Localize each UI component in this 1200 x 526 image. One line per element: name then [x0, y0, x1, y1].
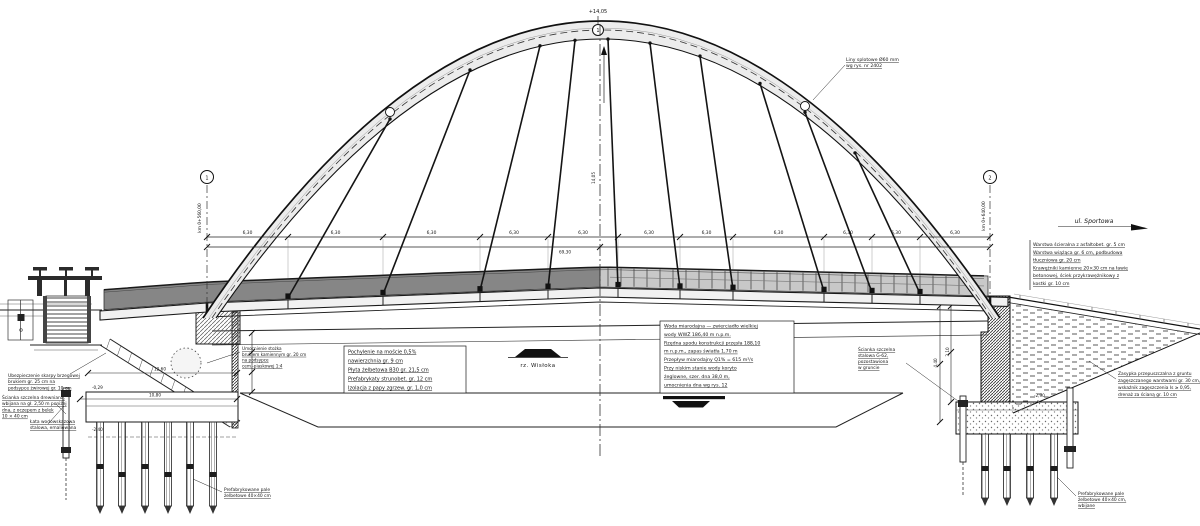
- pile-splice-band: [1051, 466, 1058, 471]
- apex-node-number: 1: [596, 28, 599, 34]
- pile-tip: [119, 506, 126, 514]
- piles-left-note-line: żelbetowe 40×40 cm: [224, 493, 271, 499]
- gate-screen: [46, 296, 88, 343]
- pile-splice-band: [1004, 466, 1011, 471]
- cable-clamp: [758, 82, 761, 85]
- hydrology-line: Rzędna spodu konstrukcji przęsła 188,10: [664, 340, 760, 346]
- wall-height-dim: 4,40: [933, 358, 938, 368]
- hydrology-table: [660, 321, 794, 393]
- pile-splice-band: [165, 472, 172, 477]
- gauge-note-line: Łata wodowskazowa: [29, 419, 75, 425]
- piles-right-note-line: żelbetowe 40×40 cm,: [1078, 497, 1126, 503]
- deck-layers-line: nawierzchnia gr. 9 cm: [348, 359, 403, 365]
- hanger-cable: [650, 43, 680, 288]
- deck-layers-line: Izolacja z papy zgrzew. gr. 1,0 cm: [348, 386, 432, 392]
- gate-beam: [28, 276, 102, 280]
- sheetpile-right-line: stalowa G-62,: [858, 353, 888, 359]
- street-direction-arrow: [1131, 224, 1148, 231]
- pile-splice-band: [97, 464, 104, 469]
- rise-arrowhead: [601, 46, 607, 55]
- sheetpile-note-line: wbijana na gł. 2,50 m poniżej: [2, 401, 67, 407]
- support-node-left-number: 1: [205, 175, 208, 181]
- cone-note-line: brukiem kamiennym gr. 20 cm: [242, 352, 306, 357]
- riprap-hatch-line: [107, 339, 111, 349]
- gate-stem: [65, 271, 67, 277]
- cable-clamp: [803, 111, 806, 114]
- footing-right: [956, 402, 1078, 434]
- apex-elevation-label: +14,05: [589, 9, 608, 15]
- riprap-hatch-line: [161, 373, 165, 383]
- axis-left-km-label: km 0+560,00: [197, 203, 203, 233]
- road-layers-line: Krawężniki kamienne 20×30 cm na ławie: [1033, 265, 1128, 271]
- riprap-hatch-line: [172, 380, 176, 390]
- hydrology-line: wody WWŻ 186,40 m n.p.m.: [664, 331, 731, 338]
- dim-segment-label: 6,30: [950, 230, 960, 236]
- dewatering-well: [1067, 388, 1073, 468]
- hydrology-line: Przepływ miarodajny Q1% = 615 m³/s: [664, 357, 754, 363]
- riprap-hatch-line: [150, 366, 154, 376]
- hydrology-line: żeglowne, szer. dna 38,0 m,: [664, 374, 730, 380]
- cable-clamp: [538, 44, 541, 47]
- pile-tip: [165, 506, 172, 514]
- cable-anchor: [477, 286, 482, 292]
- hanger-cable: [700, 56, 733, 289]
- hydrology-line: Przy niskim stanie wody koryto: [664, 366, 737, 372]
- road-layers-line: Warstwa ścieralna z asfaltobet. gr. 5 cm: [1033, 241, 1125, 248]
- dim-segment-label: 6,30: [774, 230, 784, 236]
- dim-segment-label: 6,30: [509, 230, 519, 236]
- sheetpile-right-line: pozostawiona: [858, 359, 888, 365]
- cable-note-line: wg rys. nr 2402: [846, 63, 882, 69]
- reference-axes: 14,05 1 km 0+560,00 2 km 0+640,00: [197, 24, 997, 456]
- cable-clamp: [648, 41, 651, 44]
- dim-segment-label: 6,30: [331, 230, 341, 236]
- pile-splice-band: [1027, 466, 1034, 471]
- pile-splice-band: [187, 464, 194, 469]
- backfill-line: zagęszczanego warstwami gr. 30 cm,: [1118, 378, 1200, 384]
- pile-tip: [1027, 498, 1034, 506]
- dim-segment-label: 6,30: [243, 230, 253, 236]
- gate-post: [64, 280, 67, 296]
- pile-tip: [1051, 498, 1058, 506]
- gate-cap: [33, 267, 47, 271]
- cable-clamp: [606, 37, 609, 40]
- cable-anchor: [677, 283, 682, 289]
- sheet-pile-band: [61, 447, 71, 453]
- deck-layers-line: Pochylenie na moście 0,5%: [348, 349, 417, 356]
- cable-anchor: [285, 293, 290, 299]
- gate-cap: [59, 267, 73, 271]
- cone-note-line: cem.-piaskowej 1:4: [242, 363, 283, 368]
- cable-clamp: [853, 151, 856, 154]
- river-label: rz. Wisłoka: [520, 363, 555, 369]
- pile-tip: [1004, 498, 1011, 506]
- riprap-hatch-line: [117, 346, 121, 356]
- drawing-canvas: 1 +14,05 14,05 1 km 0+560,00 2 km 0+640,…: [0, 0, 1200, 526]
- gauge-marker: [18, 314, 25, 321]
- sheetpile-note-line: dna, z oczepem z belek: [2, 407, 54, 413]
- water-level-symbol: [515, 349, 561, 357]
- pile-tip: [97, 506, 104, 514]
- arch-node-circle: [801, 102, 810, 111]
- street-label: ul. Sportowa: [1075, 217, 1114, 225]
- slope-note-line: brukiem gr. 25 cm na: [8, 379, 55, 385]
- gate-side: [87, 296, 91, 343]
- cable-note-line: Liny splotowe Ø60 mm: [846, 56, 899, 63]
- backfill-line: drenaż za ścianą gr. 10 cm: [1118, 391, 1177, 398]
- dim-segment-label: 6,30: [427, 230, 437, 236]
- sheetpile-right-line: w gruncie: [858, 365, 880, 371]
- sheet-pile-cap: [958, 400, 968, 407]
- wall-upper-dim: 3,10: [945, 347, 950, 357]
- pile-splice-band: [210, 472, 217, 477]
- gate-cap: [85, 267, 99, 271]
- support-node-right-number: 2: [988, 175, 991, 181]
- cone-note-line: Umocnienie stożka: [242, 346, 282, 351]
- cable-anchor: [821, 287, 826, 293]
- hydrology-line: Woda miarodajna — zwierciadło wielkiej: [664, 324, 758, 330]
- cable-anchor: [730, 285, 735, 291]
- cable-anchor: [615, 282, 620, 288]
- pile-splice-band: [982, 466, 989, 471]
- deck-layers-line: Prefabrykaty strunobet. gr. 12 cm: [348, 377, 432, 383]
- pile: [210, 422, 217, 506]
- hydrology-line: m n.p.m., zapas światła 1,70 m: [664, 348, 738, 355]
- cable-clamp: [388, 117, 391, 120]
- gate-side: [43, 296, 47, 343]
- pile-tip: [210, 506, 217, 514]
- cable-anchor: [545, 284, 550, 290]
- backfill-line: Zasypka przepuszczalna z gruntu: [1118, 371, 1192, 377]
- pile: [165, 422, 172, 506]
- pile-tip: [187, 506, 194, 514]
- low-water-symbol: [672, 401, 710, 408]
- cable-anchor: [917, 289, 922, 295]
- piles-right-note-line: wbijane: [1078, 503, 1095, 509]
- slope-note-line: Ubezpieczenie skarpy brzegowej: [8, 373, 80, 379]
- hanger-cable: [480, 46, 540, 291]
- piles-left-note-line: Prefabrykowane pale: [224, 487, 270, 493]
- bridge-longitudinal-section-drawing: 1 +14,05 14,05 1 km 0+560,00 2 km 0+640,…: [0, 0, 1200, 526]
- elevation-label: -2,40: [92, 427, 103, 432]
- cable-clamp: [468, 68, 471, 71]
- gate-post: [85, 280, 90, 296]
- riprap-hatch-line: [128, 353, 132, 363]
- slope-note-line: podsypce żwirowej gr. 10 cm: [8, 385, 72, 391]
- pile-splice-band: [119, 472, 126, 477]
- dim-segment-label: 6,30: [702, 230, 712, 236]
- cable-anchor: [380, 290, 385, 296]
- cable-clamp: [698, 54, 701, 57]
- gate-post: [37, 280, 42, 296]
- gate-stem: [39, 271, 41, 277]
- sheetpile-note-line: 10 × 40 cm: [2, 414, 28, 420]
- sheetpile-note-line: Ścianka szczelna drewniana,: [2, 394, 65, 401]
- gauge-dot: [20, 329, 23, 332]
- foundation-piles: [97, 422, 1058, 514]
- elevation-label: -2,90: [1034, 393, 1045, 398]
- cap-lower-dim: 10,80: [149, 393, 161, 398]
- stone-detail-circle: [171, 348, 201, 378]
- axis-right-km-label: km 0+640,00: [981, 201, 987, 231]
- rise-label: 14,05: [591, 172, 596, 184]
- road-layers-line: kostki gr. 10 cm: [1033, 281, 1070, 287]
- total-span-label: 69,30: [559, 250, 571, 255]
- piles-right-note-line: Prefabrykowane pale: [1078, 491, 1124, 497]
- hydrology-line: umocnienia dna wg rys. 12: [664, 382, 727, 388]
- cone-note-line: na podsypce: [242, 358, 269, 363]
- riprap-hatch-line: [139, 360, 143, 370]
- dredged-channel: [240, 393, 903, 427]
- cable-anchor: [869, 288, 874, 294]
- arch-node-circle: [386, 108, 395, 117]
- pile-splice-band: [142, 464, 149, 469]
- road-layers-line: Warstwa wiążąca gr. 6 cm, podbudowa: [1033, 250, 1123, 256]
- pile-cap-left: [86, 392, 238, 422]
- cable-clamp: [573, 39, 576, 42]
- sheetpile-right-line: Ścianka szczelna: [858, 346, 895, 353]
- road-layers-line: tłuczniowa gr. 20 cm: [1033, 258, 1081, 264]
- pile-tip: [982, 498, 989, 506]
- pile: [119, 422, 126, 506]
- low-water-bar: [663, 396, 725, 399]
- gauge-note-line: stalowa, emaliowana: [30, 425, 77, 431]
- road-layers-line: betonowej, ściek przykrawężnikowy z: [1033, 272, 1120, 279]
- hanger-cable: [608, 39, 618, 286]
- gate-stem: [91, 271, 93, 277]
- backfill-line: wskaźnik zagęszczenia Is ≥ 0,95,: [1118, 384, 1191, 391]
- cap-upper-dim: 12,60: [154, 367, 166, 372]
- dim-segment-label: 6,30: [644, 230, 654, 236]
- deck-layers-line: Płyta żelbetowa B30 gr. 21,5 cm: [348, 368, 429, 374]
- elevation-label: -0,29: [92, 385, 103, 390]
- dim-segment-label: 6,30: [578, 230, 588, 236]
- well-band: [1064, 446, 1076, 452]
- hanger-cable: [288, 119, 390, 298]
- pile-tip: [142, 506, 149, 514]
